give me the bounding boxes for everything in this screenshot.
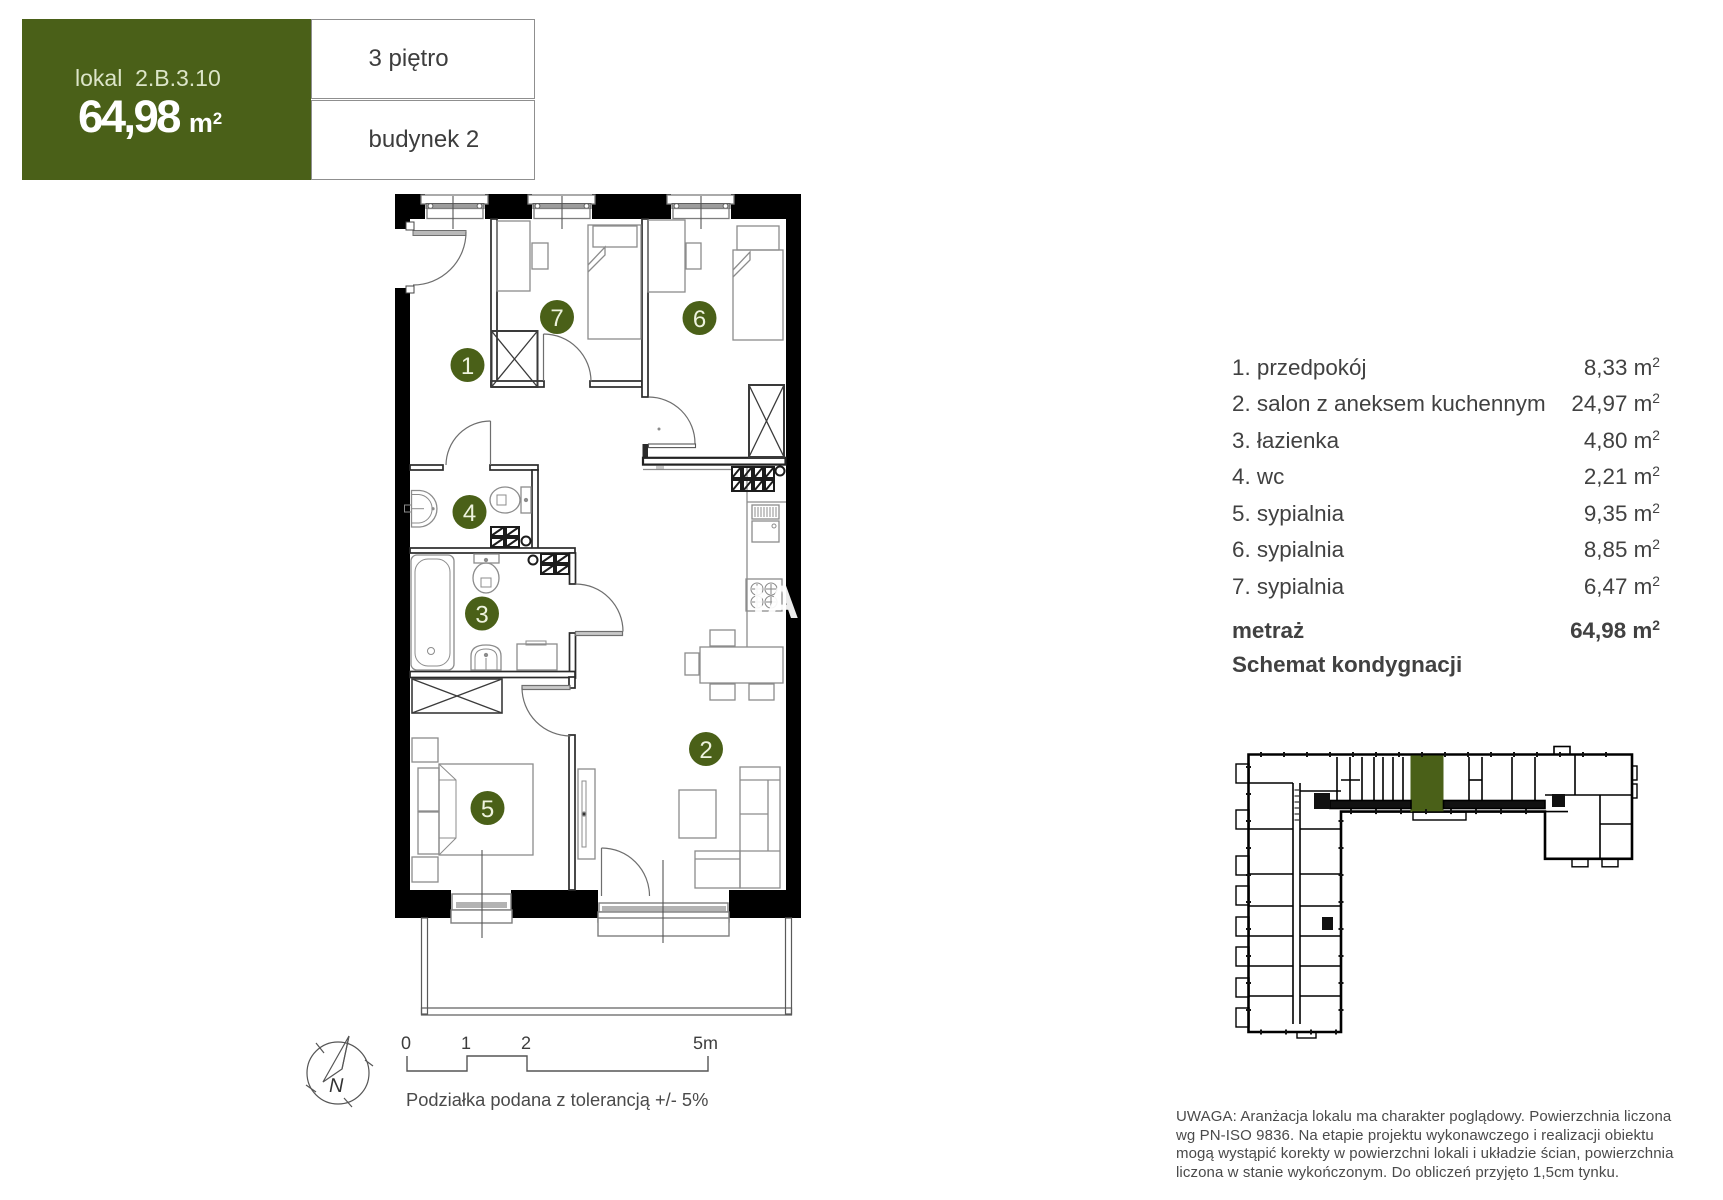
svg-text:3: 3 [475, 602, 488, 629]
svg-text:2: 2 [521, 1033, 531, 1053]
svg-text:6: 6 [693, 306, 706, 333]
svg-text:2: 2 [699, 737, 712, 764]
svg-text:1: 1 [461, 1033, 471, 1053]
svg-text:0: 0 [401, 1033, 411, 1053]
svg-text:5m: 5m [693, 1033, 718, 1053]
svg-text:N: N [329, 1075, 344, 1097]
svg-text:5: 5 [481, 796, 494, 823]
svg-text:IA: IA [752, 575, 799, 628]
svg-text:4: 4 [463, 500, 476, 527]
svg-text:1: 1 [461, 353, 474, 380]
svg-text:7: 7 [550, 305, 563, 332]
